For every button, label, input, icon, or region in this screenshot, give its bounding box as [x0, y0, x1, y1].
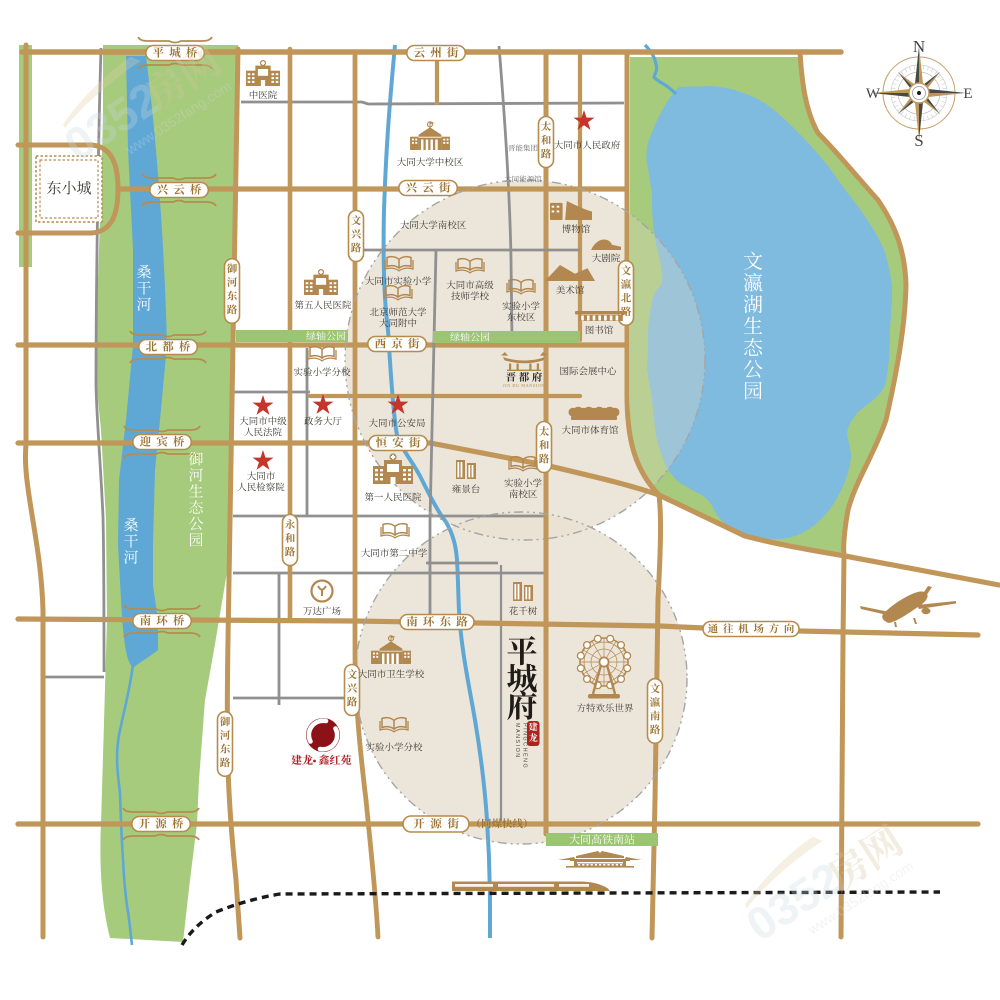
svg-text:W: W — [866, 86, 881, 102]
svg-text:E: E — [963, 86, 972, 102]
svg-text:N: N — [913, 37, 925, 56]
svg-text:PINGCHENG: PINGCHENG — [522, 723, 528, 769]
svg-text:JIN DU MANSION: JIN DU MANSION — [503, 383, 545, 388]
svg-text:MANSION: MANSION — [514, 723, 520, 759]
svg-text:S: S — [914, 131, 923, 150]
